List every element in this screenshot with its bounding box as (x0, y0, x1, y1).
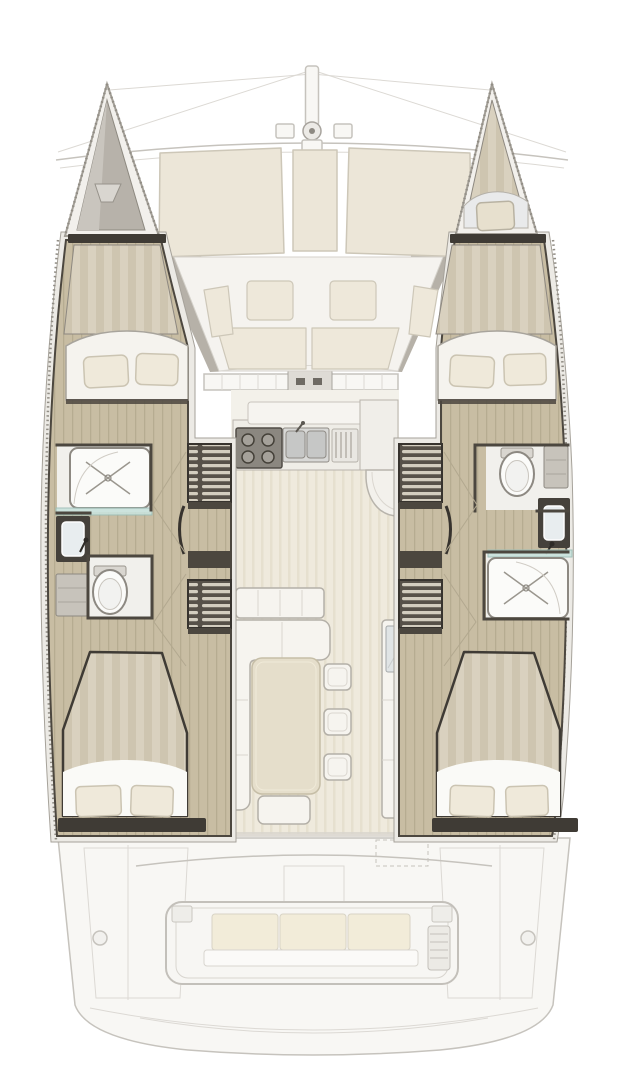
port-vanity (56, 516, 90, 562)
sliding-door (288, 370, 332, 392)
floor-plan-canvas: Catamaran interior layout deck plan (0, 0, 629, 1080)
beam-fitting-starboard (334, 124, 352, 138)
foredeck (150, 148, 471, 372)
faucet-base (301, 421, 305, 425)
foredeck-sunpads (159, 148, 471, 257)
bench-cushion-1 (212, 914, 278, 950)
port-aft-sill (58, 818, 206, 832)
port-bow-locker (65, 84, 159, 236)
saloon-aft-bench (258, 796, 310, 824)
starboard-forepeak-sill (450, 234, 546, 243)
catamaran-deck-plan (0, 0, 629, 1080)
windshield (204, 370, 398, 392)
starboard-aft-pillow-2 (505, 785, 548, 816)
port-forward-cabin (66, 331, 188, 404)
starboard-bow-cushion (476, 201, 514, 231)
bench-base (204, 950, 418, 966)
liferaft-ribbed-panel (428, 926, 450, 970)
sunpad-center (293, 150, 337, 251)
forward-cockpit (174, 257, 443, 371)
starboard-aft-sill (432, 818, 578, 832)
port-shower (70, 448, 150, 508)
sink-basin-right (307, 431, 326, 458)
counter-starboard (360, 400, 398, 470)
starboard-stairs-lower (399, 580, 442, 628)
beam-fitting-port (276, 124, 294, 138)
cockpit-table-port (247, 281, 293, 320)
starboard-shower (488, 558, 568, 618)
starboard-forward-cabin (438, 331, 556, 404)
starboard-aft-pillow-1 (449, 785, 494, 817)
door-handle-right (313, 378, 322, 385)
port-toilet (93, 566, 127, 614)
sunpad-port (159, 148, 284, 257)
stove-top (236, 428, 282, 468)
starboard-toilet (500, 448, 534, 496)
port-forward-bed-base (66, 399, 188, 404)
aft-cockpit-bench (166, 902, 458, 984)
bench-cushion-3 (348, 914, 410, 950)
starboard-forepeak-stripes (436, 245, 552, 334)
starboard-forward-bed-base (438, 399, 556, 404)
door-handle-left (296, 378, 305, 385)
port-forward-pillow-1 (83, 355, 129, 388)
cockpit-table-starboard (330, 281, 376, 320)
dinette-table (252, 658, 320, 794)
port-forepeak-stripes (64, 245, 178, 334)
port-stairs-lower (188, 580, 231, 628)
port-shower-tray (70, 448, 150, 508)
cockpit-bench-starboard (312, 328, 399, 369)
starboard-toilet-seat (506, 461, 529, 492)
bowsprit-pole (306, 66, 319, 126)
saloon-aft-threshold (231, 832, 399, 837)
starboard-vanity (538, 498, 570, 554)
port-toilet-seat (99, 579, 122, 610)
galley-stove (236, 428, 282, 468)
stay-line-starboard (312, 70, 566, 152)
starboard-forward-pillow-1 (449, 355, 495, 388)
saloon-sideboard (236, 588, 324, 618)
bridle-line-starboard (312, 74, 490, 90)
deck-hatch-port (93, 931, 107, 945)
starboard-stairs-upper (399, 444, 442, 502)
port-forepeak-sill (68, 234, 166, 243)
aft-cockpit (58, 838, 570, 1055)
starboard-shower-tray (488, 558, 568, 618)
deck-hatch-starboard (521, 931, 535, 945)
port-aft-pillow-1 (75, 785, 121, 817)
saloon (214, 390, 416, 837)
bench-arm-port (172, 906, 192, 922)
cockpit-side-seat-starboard (409, 286, 438, 337)
bridle-line-port (109, 74, 312, 90)
starboard-forward-pillow-2 (503, 353, 546, 385)
sink-basin-left (286, 431, 305, 458)
starboard-head-cabinet (544, 446, 568, 488)
bench-cushion-2 (280, 914, 346, 950)
bench-arm-starboard (432, 906, 452, 922)
furler-center (309, 128, 315, 134)
galley-drain-rack (332, 429, 358, 462)
port-forward-pillow-2 (135, 353, 178, 385)
port-head-cabinet (56, 574, 88, 616)
saloon-stools (324, 664, 351, 780)
port-aft-pillow-2 (130, 785, 173, 816)
port-stairs-upper (188, 444, 231, 502)
